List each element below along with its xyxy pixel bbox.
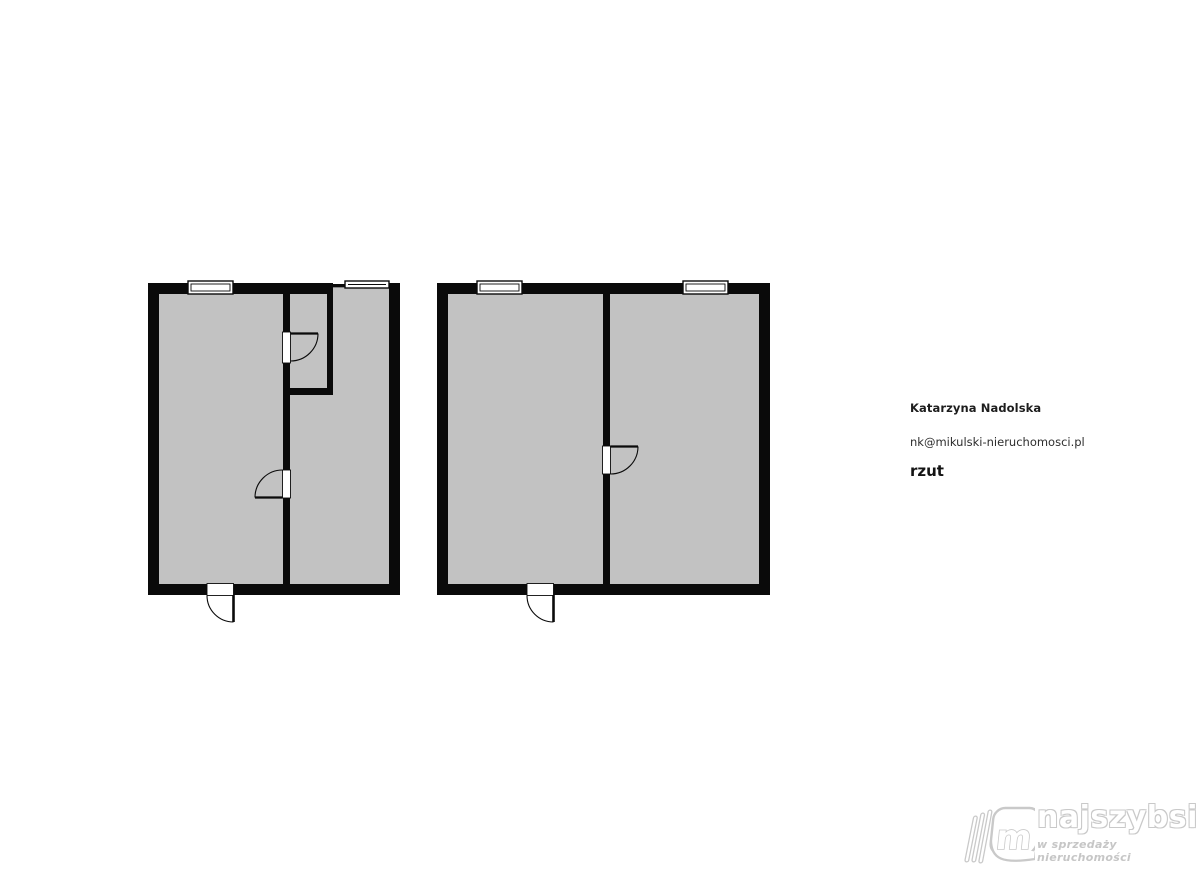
agent-email: nk@mikulski-nieruchomosci.pl bbox=[910, 435, 1085, 449]
interior-wall-divider bbox=[603, 288, 610, 584]
entry-door-opening bbox=[527, 584, 554, 596]
floor-plan-right bbox=[437, 281, 770, 622]
exterior-wall-top bbox=[148, 283, 333, 294]
plan-caption: rzut bbox=[910, 462, 1085, 480]
svg-text:m: m bbox=[994, 818, 1034, 858]
window bbox=[477, 281, 522, 294]
floor-plan-left bbox=[148, 281, 400, 622]
alcove-wall-right bbox=[327, 288, 333, 395]
exterior-wall-right bbox=[389, 283, 400, 595]
exterior-wall-bottom bbox=[148, 584, 400, 595]
door-opening bbox=[603, 446, 611, 474]
agent-name: Katarzyna Nadolska bbox=[910, 401, 1085, 415]
exterior-wall-left bbox=[148, 283, 159, 595]
window bbox=[345, 281, 389, 288]
brand-logo: m najszybsi w sprzedaży nieruchomości bbox=[955, 800, 1195, 872]
exterior-wall-right bbox=[759, 283, 770, 595]
page-canvas: Katarzyna Nadolska nk@mikulski-nieruchom… bbox=[0, 0, 1200, 878]
floor-area bbox=[153, 288, 395, 590]
door-opening bbox=[283, 332, 291, 363]
brand-text-block: najszybsi w sprzedaży nieruchomości bbox=[1037, 800, 1198, 864]
door-opening bbox=[283, 470, 291, 498]
exterior-wall-bottom bbox=[437, 584, 770, 595]
entry-door-opening bbox=[207, 584, 234, 596]
entry-door-swing bbox=[527, 595, 554, 622]
entry-door-swing bbox=[207, 595, 234, 622]
brand-name: najszybsi bbox=[1037, 800, 1198, 836]
open-book-m-icon: m bbox=[955, 802, 1035, 870]
brand-tagline: w sprzedaży nieruchomości bbox=[1037, 838, 1198, 864]
window bbox=[188, 281, 233, 294]
contact-block: Katarzyna Nadolska nk@mikulski-nieruchom… bbox=[910, 401, 1085, 480]
exterior-wall-left bbox=[437, 283, 448, 595]
window bbox=[683, 281, 728, 294]
alcove-wall-bottom bbox=[283, 388, 333, 395]
